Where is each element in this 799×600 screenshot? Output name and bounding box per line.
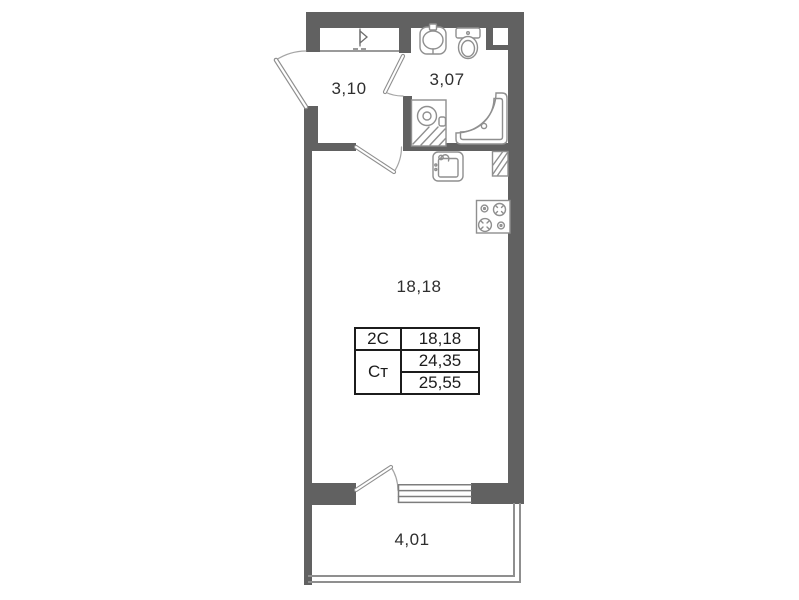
floor-plan: 3,10 3,07 18,18 4,01 2С 18,18 Ст 24,35 2…	[0, 0, 799, 600]
vent-shaft-icon	[493, 152, 509, 177]
washbasin-icon	[420, 24, 446, 54]
hallway-area-label: 3,10	[314, 79, 384, 99]
balcony-area-label: 4,01	[377, 530, 447, 550]
apartment-type-cell: 2С	[355, 328, 401, 350]
plan-linework	[0, 0, 799, 600]
bathroom-area-label: 3,07	[412, 70, 482, 90]
wardrobe-icon	[360, 29, 367, 46]
toilet-icon	[456, 28, 480, 59]
stove-icon	[477, 201, 511, 234]
balcony-door-icon	[356, 467, 398, 490]
kitchen-sink-icon	[433, 152, 463, 181]
washing-machine-icon	[412, 100, 447, 146]
entrance-door-icon	[276, 51, 306, 107]
living-room-area-label: 18,18	[384, 277, 454, 297]
window-icon	[399, 485, 472, 503]
area-value-cell: 18,18	[401, 328, 479, 350]
table-row: 2С 18,18	[355, 328, 479, 350]
bathroom-door-icon	[385, 56, 403, 96]
area-value-cell: 24,35	[401, 350, 479, 372]
area-value-cell: 25,55	[401, 372, 479, 394]
area-table: 2С 18,18 Ст 24,35 25,55	[354, 327, 480, 395]
shower-icon	[456, 93, 507, 144]
room-door-icon	[356, 147, 402, 172]
table-row: Ст 24,35	[355, 350, 479, 372]
apartment-type-cell: Ст	[355, 350, 401, 394]
